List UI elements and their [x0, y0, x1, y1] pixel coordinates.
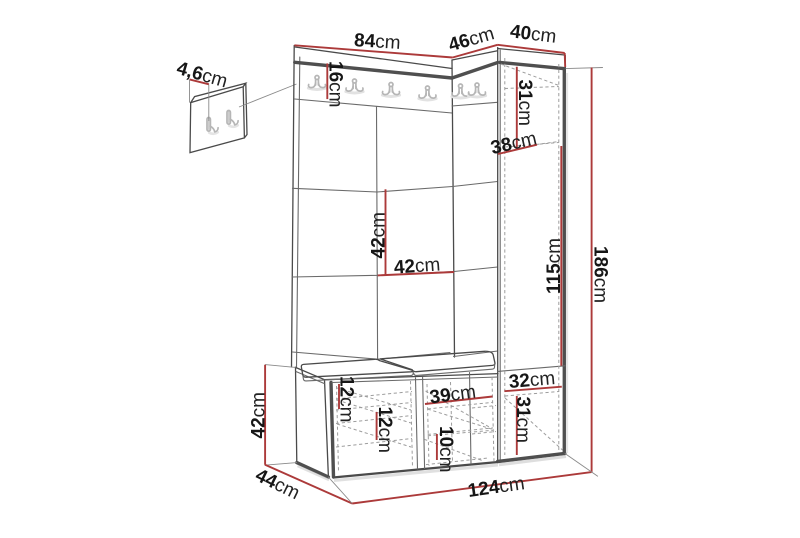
- svg-text:186cm: 186cm: [590, 246, 611, 303]
- svg-text:12cm: 12cm: [336, 376, 357, 422]
- svg-text:10cm: 10cm: [435, 426, 456, 472]
- svg-text:42cm: 42cm: [369, 212, 390, 258]
- svg-text:115cm: 115cm: [544, 238, 565, 294]
- svg-text:42cm: 42cm: [249, 392, 270, 438]
- svg-text:42cm: 42cm: [393, 254, 441, 278]
- svg-text:12cm: 12cm: [374, 407, 395, 453]
- svg-text:31cm: 31cm: [512, 397, 533, 443]
- svg-text:32cm: 32cm: [508, 368, 556, 393]
- svg-text:16cm: 16cm: [325, 61, 346, 107]
- svg-text:31cm: 31cm: [514, 80, 535, 126]
- svg-text:84cm: 84cm: [354, 30, 402, 54]
